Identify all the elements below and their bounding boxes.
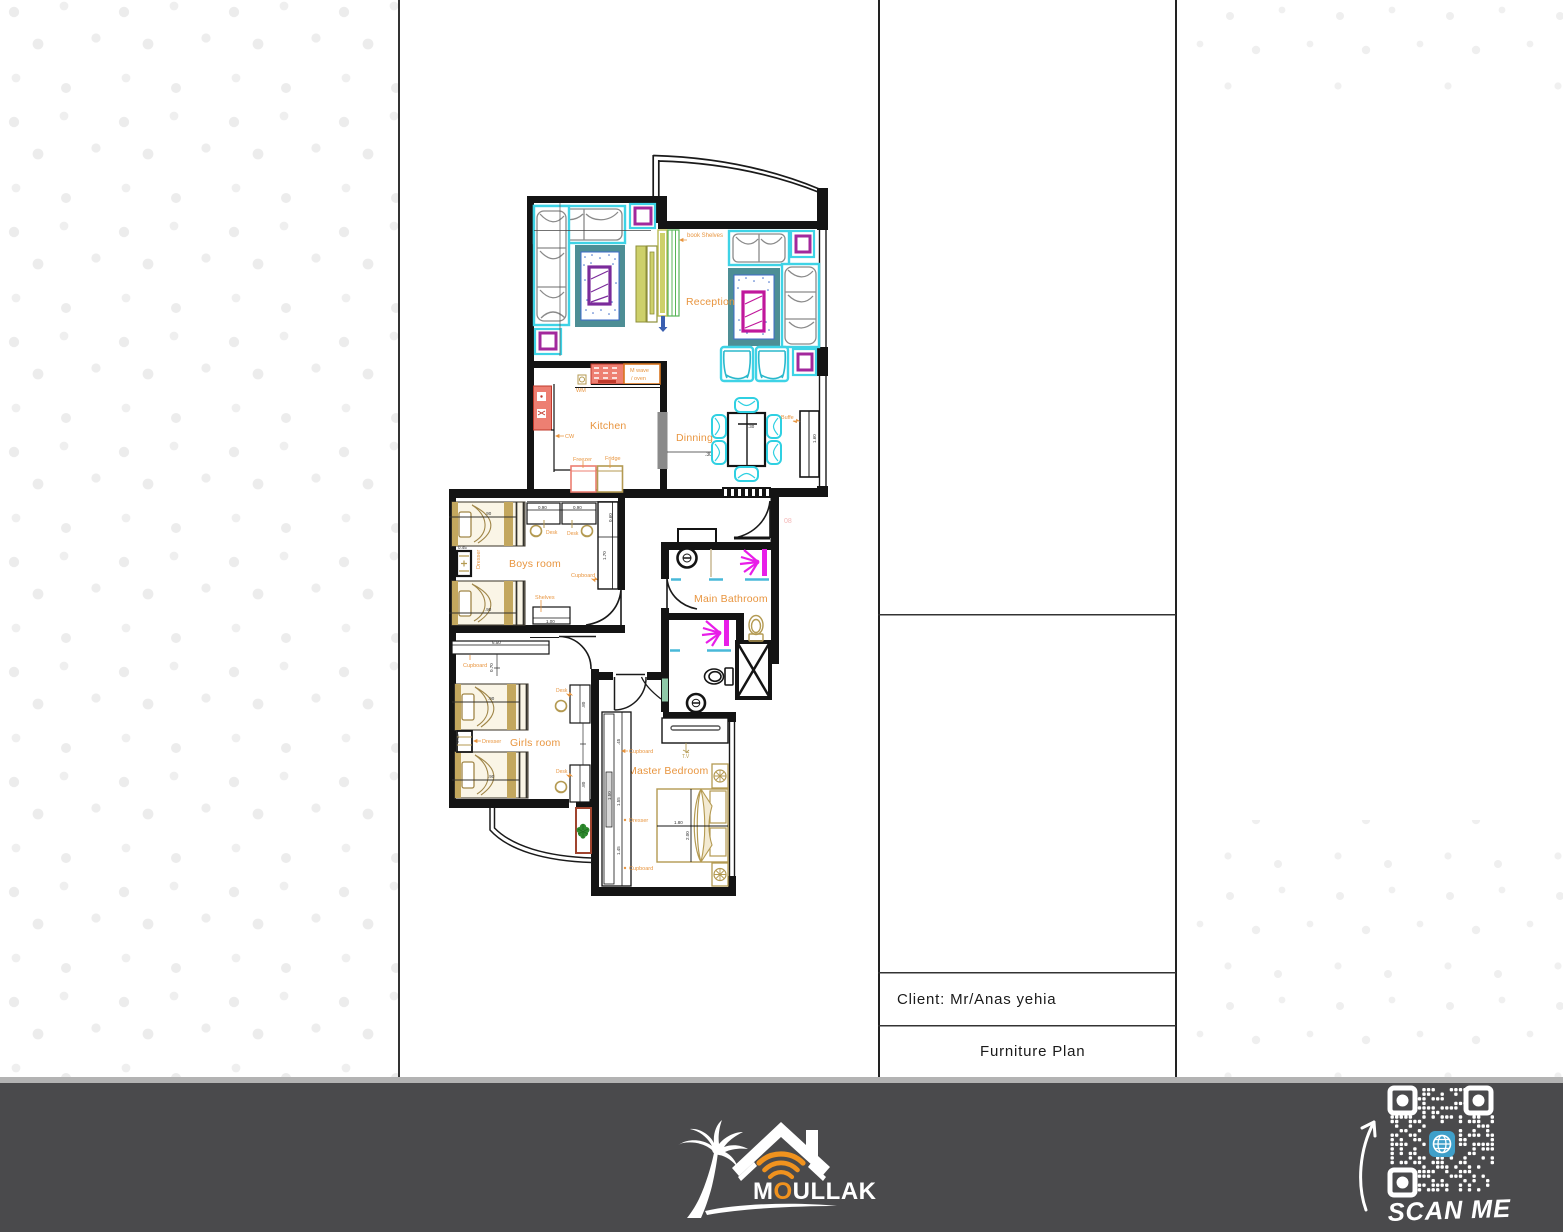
svg-text:0.90: 0.90 [573, 505, 582, 510]
svg-text:.30: .30 [748, 424, 755, 429]
svg-text:Cupboard: Cupboard [629, 749, 653, 755]
svg-text:SCAN ME: SCAN ME [1387, 1195, 1511, 1227]
svg-text:08: 08 [784, 518, 792, 525]
svg-text:Furniture Plan: Furniture Plan [980, 1043, 1085, 1060]
svg-text:MOULLAK: MOULLAK [753, 1178, 877, 1205]
svg-text:Kitchen: Kitchen [590, 420, 626, 432]
svg-text:Buffe: Buffe [781, 415, 794, 421]
svg-text:/ oven: / oven [631, 376, 646, 382]
svg-text:0.60: 0.60 [608, 513, 613, 522]
svg-text:1.50: 1.50 [607, 791, 612, 800]
svg-text:1.00: 1.00 [546, 619, 555, 624]
svg-text:Cupboard: Cupboard [629, 866, 653, 872]
svg-text:Girls room: Girls room [510, 737, 560, 749]
svg-text:1.80: 1.80 [674, 820, 683, 825]
svg-text:Shelves: Shelves [535, 595, 555, 601]
svg-text:Fridge: Fridge [605, 456, 621, 462]
svg-text:Cupboard: Cupboard [463, 663, 487, 669]
svg-text:.80: .80 [581, 701, 586, 708]
svg-text:Reception: Reception [686, 296, 735, 308]
svg-text:1.60: 1.60 [812, 434, 817, 443]
svg-text:T.V: T.V [682, 754, 690, 760]
svg-text:2.00: 2.00 [685, 831, 690, 840]
svg-text:1.55: 1.55 [616, 797, 621, 806]
svg-text:.90: .90 [488, 696, 495, 701]
svg-text:Client: Mr/Anas yehia: Client: Mr/Anas yehia [897, 991, 1056, 1008]
svg-text:WM: WM [576, 388, 586, 394]
svg-text:Dinning: Dinning [676, 432, 713, 444]
svg-text:.90: .90 [485, 511, 492, 516]
svg-text:0.90: 0.90 [538, 505, 547, 510]
svg-text:.90: .90 [488, 774, 495, 779]
svg-text:Master Bedroom: Master Bedroom [628, 765, 708, 777]
svg-text:CW: CW [565, 434, 575, 440]
svg-text:Boys room: Boys room [509, 558, 561, 570]
svg-text:Dresser: Dresser [476, 550, 482, 569]
svg-text:1.45: 1.45 [616, 846, 621, 855]
svg-text:Desk: Desk [546, 530, 558, 536]
svg-text:Desk: Desk [556, 688, 568, 694]
svg-text:Dresser: Dresser [629, 818, 648, 824]
svg-text:.45: .45 [616, 738, 621, 745]
svg-text:Freezer: Freezer [573, 457, 592, 463]
svg-text:Cupboard: Cupboard [571, 573, 595, 579]
svg-text:.90: .90 [485, 607, 492, 612]
svg-text:.80: .80 [581, 781, 586, 788]
svg-text:0.45: 0.45 [455, 734, 460, 743]
svg-text:Main Bathroom: Main Bathroom [694, 593, 768, 605]
svg-text:M wave: M wave [630, 368, 649, 374]
svg-text:Desk: Desk [556, 769, 568, 775]
svg-text:0.70: 0.70 [489, 663, 494, 672]
svg-text:1.70: 1.70 [602, 551, 607, 560]
svg-text:0.45: 0.45 [458, 545, 467, 550]
svg-text:Dresser: Dresser [482, 739, 501, 745]
svg-text:6.50: 6.50 [492, 640, 501, 645]
svg-text:book Shelves: book Shelves [687, 233, 723, 239]
svg-text:Desk: Desk [567, 531, 579, 537]
